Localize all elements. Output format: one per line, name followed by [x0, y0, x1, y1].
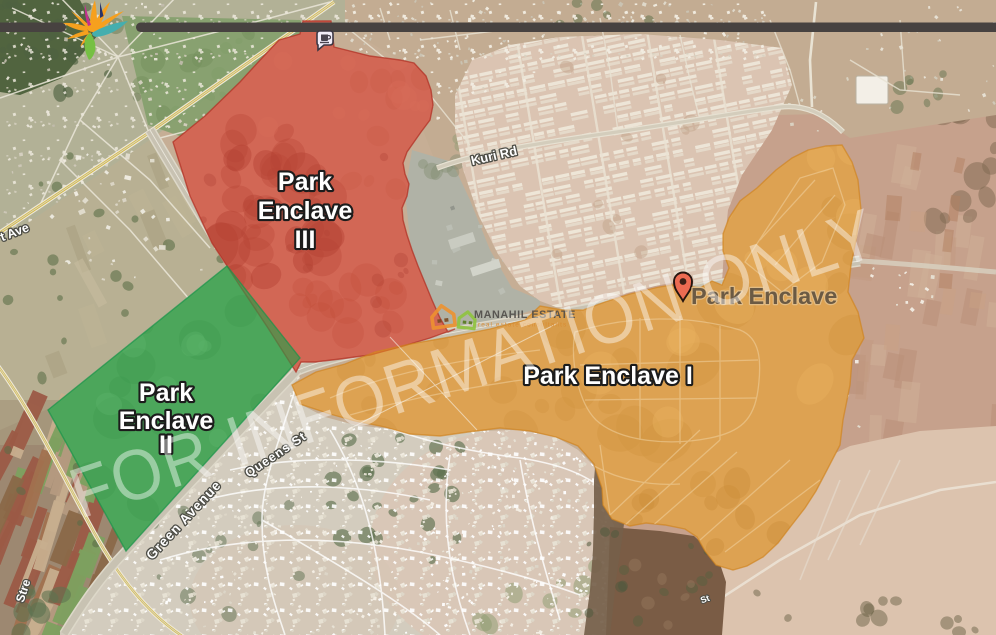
svg-text:Park: Park	[278, 168, 332, 196]
svg-text:III: III	[295, 226, 316, 254]
svg-text:Enclave: Enclave	[258, 197, 353, 225]
svg-text:Park: Park	[139, 379, 193, 407]
